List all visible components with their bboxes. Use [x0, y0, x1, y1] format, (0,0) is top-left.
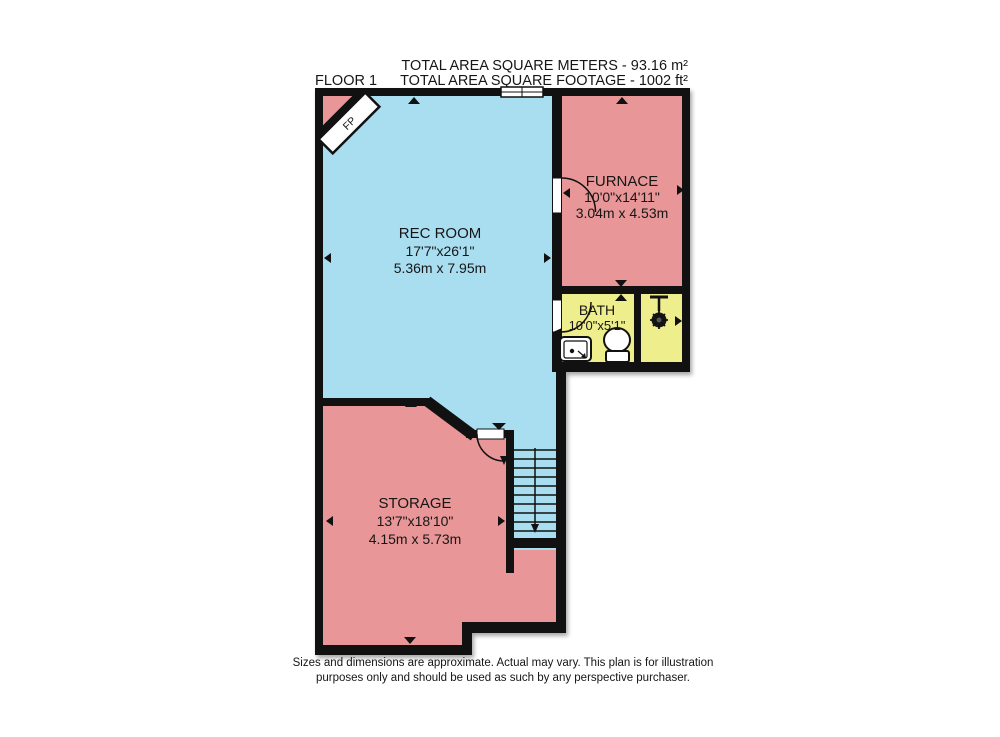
floorplan-page: FLOOR 1 TOTAL AREA SQUARE METERS - 93.16… [0, 0, 1000, 737]
wall-furnace-bath-divider [562, 286, 682, 294]
wall-stairs-left [506, 430, 514, 573]
floorplan-drawing: FP [315, 87, 690, 655]
wall-stairs-bottom [506, 538, 566, 548]
wall-outer-right-upper [682, 88, 690, 372]
furnace-size-metric: 3.04m x 4.53m [576, 205, 669, 221]
rec-room-size-metric: 5.36m x 7.95m [394, 260, 487, 276]
storage-size-metric: 4.15m x 5.73m [369, 531, 462, 547]
toilet [604, 328, 630, 362]
furnace-name: FURNACE [586, 173, 659, 190]
bath-size-imperial: 10'0"x5'1" [569, 318, 626, 333]
sink [560, 337, 591, 361]
disclaimer-line2: purposes only and should be used as such… [316, 672, 690, 684]
window-top [501, 87, 543, 97]
wall-outer-left [315, 88, 323, 655]
rec-room-size-imperial: 17'7"x26'1" [405, 243, 474, 259]
total-area-metric: TOTAL AREA SQUARE METERS - 93.16 m² [401, 58, 688, 74]
wall-bath-bottom [552, 362, 690, 372]
wall-shower-divider [634, 294, 641, 362]
bath-name: BATH [579, 302, 615, 318]
wall-bottom-right [462, 622, 566, 633]
furnace-size-imperial: 10'0"x14'11" [584, 189, 660, 205]
rec-room-name: REC ROOM [399, 225, 482, 242]
storage-name: STORAGE [378, 495, 451, 512]
disclaimer-line1: Sizes and dimensions are approximate. Ac… [293, 657, 714, 669]
storage-size-imperial: 13'7"x18'10" [377, 513, 454, 529]
floorplan-svg: FLOOR 1 TOTAL AREA SQUARE METERS - 93.16… [0, 0, 1000, 737]
wall-bottom-left [315, 645, 472, 655]
wall-outer-right-lower [556, 362, 566, 633]
total-area-imperial: TOTAL AREA SQUARE FOOTAGE - 1002 ft² [400, 73, 688, 89]
floor-label: FLOOR 1 [315, 73, 377, 89]
